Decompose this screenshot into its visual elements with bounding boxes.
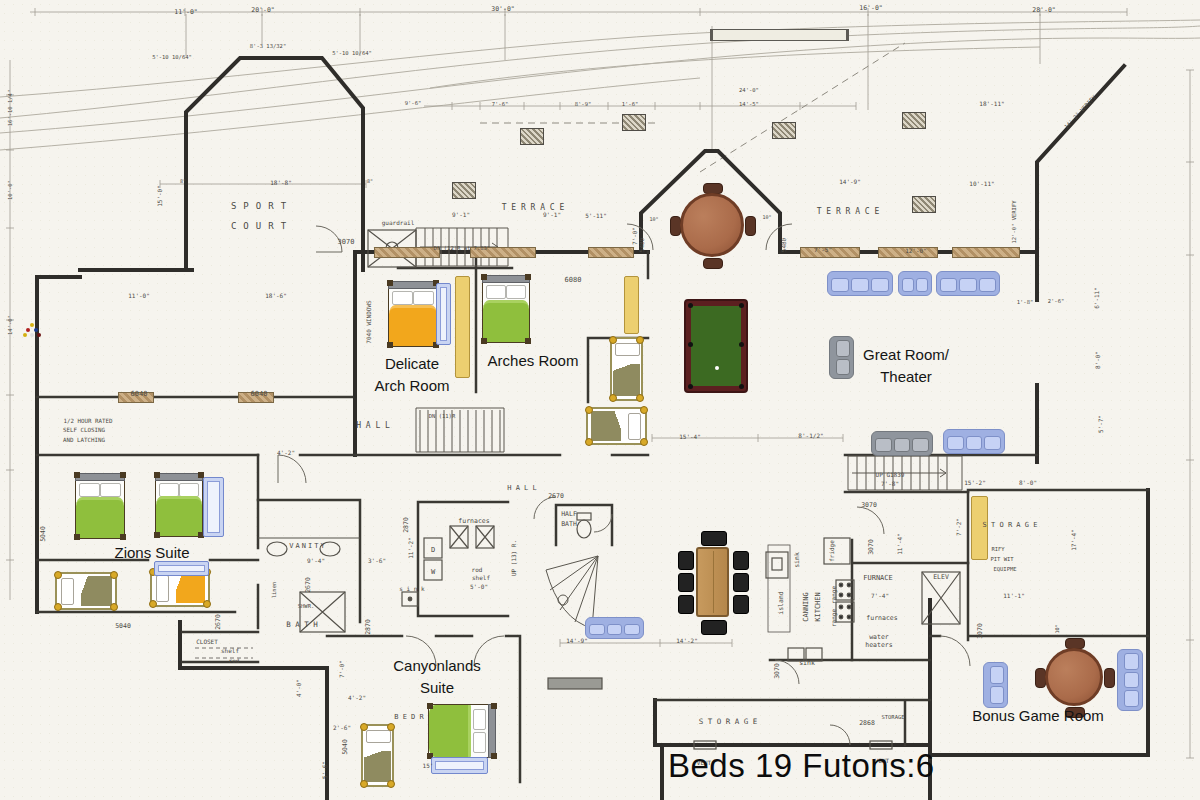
dimension-label: 11'-0"	[174, 8, 197, 16]
dimension-label: 5'-10 10/64"	[152, 54, 192, 60]
dimension-label: 14'-9"	[566, 637, 588, 644]
annotation-text: 2870	[364, 619, 372, 635]
annotation-text: 5480	[780, 238, 787, 252]
zions-suite-label: Zions Suite	[114, 542, 189, 564]
annotation-text: SPORT	[231, 201, 293, 211]
annotation-text: sink	[799, 659, 815, 667]
annotation-text: 2670	[214, 614, 222, 630]
dimension-label: 11'-1"	[1003, 592, 1025, 599]
annotation-text: 7040 WINDOWS	[365, 300, 372, 343]
annotation-text: UP (13) R.	[510, 540, 517, 576]
arches-room-label-line: Arches Room	[488, 352, 579, 369]
dimension-label: 17'-4"	[1070, 529, 1077, 551]
annotation-text: CANNING	[802, 592, 810, 622]
annotation-text: 2868	[859, 719, 875, 727]
annotation-text: SELF CLOSING	[63, 427, 105, 433]
annotation-text: COURT	[231, 221, 293, 231]
dimension-label: 14'-0"	[7, 315, 13, 335]
dimension-label: 14'-9"	[839, 178, 861, 185]
dimension-label: 7'-5"	[814, 246, 832, 253]
dimension-label: 2'-6"	[1048, 298, 1065, 304]
annotation-text: DN (11)R	[429, 413, 456, 419]
annotation-text: linen	[271, 582, 277, 599]
canyonlands-suite-label-line: Canyonlands	[393, 657, 481, 674]
dimension-label: 18'-6"	[265, 292, 287, 299]
annotation-text: 5040	[115, 622, 131, 630]
annotation-text: H A L L	[507, 484, 537, 492]
dimension-label: 5'-11"	[585, 212, 607, 219]
dimension-label: 15'-4"	[679, 433, 701, 440]
annotation-text: heaters	[865, 641, 892, 649]
dimension-label: 5'-0"	[470, 583, 488, 590]
annotation-text: shelf	[472, 574, 490, 581]
annotation-text: fridge	[828, 540, 835, 562]
dimension-label: 5'-6"	[321, 761, 328, 779]
dimension-label: 4'-2"	[348, 694, 366, 701]
annotation-text: furnaces	[458, 517, 489, 525]
annotation-text: 5480	[638, 238, 645, 252]
dimension-label: 8'-3 13/32"	[250, 43, 286, 49]
canyonlands-suite-label-line: Suite	[420, 679, 454, 696]
annotation-text: PIT WIT	[990, 556, 1013, 562]
annotation-text: W	[431, 568, 435, 576]
annotation-text: KITCHEN	[814, 592, 822, 622]
annotation-text: range	[830, 586, 837, 604]
dimension-label: 30'-0"	[491, 5, 514, 13]
annotation-text: D	[431, 546, 435, 554]
arches-room-label: Arches Room	[488, 350, 579, 372]
dimension-label: 8'-0"	[1019, 479, 1037, 486]
annotation-text: 3070	[338, 238, 355, 246]
dimension-label: 1'-6"	[622, 101, 639, 107]
dimension-label: 8"	[180, 178, 186, 184]
dimension-label: 7'-6"	[492, 101, 509, 107]
annotation-text: 1/2 HOUR RATED	[64, 418, 113, 424]
dimension-label: 3'-6"	[368, 557, 386, 564]
delicate-arch-room-label-line: Delicate	[385, 355, 439, 372]
dimension-label: 15'-2"	[964, 479, 986, 486]
delicate-arch-room-label: DelicateArch Room	[374, 353, 449, 397]
annotation-text: S T O R A G E	[699, 717, 758, 726]
dimension-label: 7'-8"	[881, 480, 899, 487]
dimension-label: 8"	[367, 178, 373, 184]
dimension-label: 18'-8"	[270, 179, 292, 186]
annotation-text: EQUIPME	[993, 566, 1016, 572]
annotation-text: UP G1839	[876, 471, 905, 478]
annotation-text: SHWR.	[298, 603, 315, 609]
dimension-label: 10'-0"	[7, 180, 13, 200]
great-room-label-line: Theater	[880, 368, 932, 385]
annotation-text: 6080	[565, 276, 582, 284]
dimension-label: 11'-4"	[896, 533, 903, 555]
annotation-text: STORAGE	[881, 714, 904, 720]
dimension-label: 6'-11"	[1093, 287, 1100, 309]
dimension-label: 18'-11"	[979, 100, 1004, 107]
dimension-label: 15'	[423, 762, 434, 769]
annotation-text: 5040	[39, 526, 47, 542]
annotation-text: island	[777, 591, 785, 614]
dimension-label: 12'-0" VERIFY	[1011, 200, 1017, 243]
annotation-text: T E R R A C E	[817, 207, 880, 216]
great-room-label-line: Great Room/	[863, 346, 949, 363]
dimension-label: 9'-1"	[543, 211, 561, 218]
dimension-label: 10"	[1054, 624, 1060, 633]
dimension-label: 12'-0"	[905, 247, 927, 254]
dimension-label: 9'-1"	[452, 211, 470, 218]
dimension-label: 1'-8"	[1017, 299, 1034, 305]
annotation-text: 3070	[867, 539, 875, 555]
dimension-label: 9'-6"	[405, 100, 422, 106]
annotation-text: 6040	[251, 390, 268, 398]
annotation-text: ELEV	[933, 573, 949, 581]
dimension-label: 10'-11"	[969, 180, 994, 187]
bonus-game-room-label: Bonus Game Room	[972, 705, 1104, 727]
dimension-label: 7'-0"	[631, 227, 638, 245]
annotation-text: FURNACE	[863, 574, 893, 582]
annotation-text: sink	[793, 552, 801, 568]
delicate-arch-room-label-line: Arch Room	[374, 377, 449, 394]
dimension-label: 20'-0"	[251, 6, 274, 14]
dimension-label: 10"	[762, 214, 771, 220]
annotation-text: rod	[472, 566, 483, 573]
annotation-text: shelf	[221, 647, 239, 654]
labels-layer: SPORTCOURTT E R R A C ET E R R A C EH A …	[0, 0, 1200, 800]
dimension-label: 9'-4"	[307, 557, 325, 564]
annotation-text: B A T H	[286, 620, 318, 629]
dimension-label: 4'-0"	[295, 679, 302, 697]
dimension-label: 2'-6"	[333, 724, 351, 731]
annotation-text: guardrail	[382, 219, 415, 226]
dimension-label: 28'-0"	[1032, 6, 1055, 14]
zions-suite-label-line: Zions Suite	[114, 544, 189, 561]
dimension-label: 5'-10 10/64"	[332, 50, 372, 56]
dimension-label: 14'-2" VERIFY	[1063, 94, 1097, 130]
dimension-label: 8'-9"	[575, 101, 592, 107]
dimension-label: 10"	[649, 216, 658, 222]
annotation-text: S T O R A G E	[983, 521, 1038, 529]
dimension-label: 16'-10 1/4"	[7, 90, 13, 126]
annotation-text: AND LATCHING	[63, 437, 105, 443]
dimension-label: 24'-0"	[739, 87, 759, 93]
beds-futons-summary: Beds 19 Futons:6	[668, 747, 935, 785]
annotation-text: s i n k	[399, 585, 424, 592]
annotation-text: HALF	[561, 510, 577, 518]
dimension-label: 7'-0"	[338, 660, 345, 678]
annotation-text: 5040	[341, 739, 349, 755]
dimension-label: 8'-1/2"	[798, 432, 823, 439]
dimension-label: 15'-0"	[156, 185, 163, 207]
dimension-label: 14'-5"	[739, 101, 759, 107]
annotation-text: H A L L	[356, 421, 390, 430]
canyonlands-suite-label: CanyonlandsSuite	[393, 655, 481, 699]
annotation-text: 3070	[976, 623, 984, 639]
annotation-text: furnaces	[866, 614, 897, 622]
annotation-text: rod	[229, 657, 240, 664]
annotation-text: 2870	[402, 517, 410, 533]
annotation-text: water	[869, 633, 889, 641]
bonus-game-room-label-line: Bonus Game Room	[972, 707, 1104, 724]
annotation-text: 3070	[861, 501, 877, 509]
annotation-text: B E D R	[394, 713, 424, 721]
annotation-text: 3070	[773, 663, 781, 679]
dimension-label: 4'-2"	[277, 449, 295, 456]
annotation-text: 2670	[304, 577, 312, 593]
annotation-text: RIFY	[991, 546, 1004, 552]
dimension-label: 16'-0"	[859, 4, 882, 12]
dimension-label: 11'-0"	[128, 292, 150, 299]
dimension-label: 8'-0"	[1094, 351, 1101, 369]
annotation-text: range	[830, 609, 837, 627]
dimension-label: 7'-4"	[871, 592, 889, 599]
floor-plan: SPORTCOURTT E R R A C ET E R R A C EH A …	[0, 0, 1200, 800]
great-room-label: Great Room/Theater	[863, 344, 949, 388]
dimension-label: 7'-2"	[955, 518, 962, 536]
annotation-text: CLOSET	[196, 638, 218, 645]
dimension-label: 11'-2"	[407, 537, 414, 559]
dimension-label: 14'-2"	[676, 637, 698, 644]
annotation-text: 6040	[131, 390, 148, 398]
annotation-text: 2670	[548, 492, 564, 500]
annotation-text: VANITY	[289, 542, 326, 550]
annotation-text: BATH	[561, 520, 577, 528]
dimension-label: DN (12)R at 7.83"	[434, 245, 490, 251]
dimension-label: 5'-7"	[1097, 415, 1104, 433]
